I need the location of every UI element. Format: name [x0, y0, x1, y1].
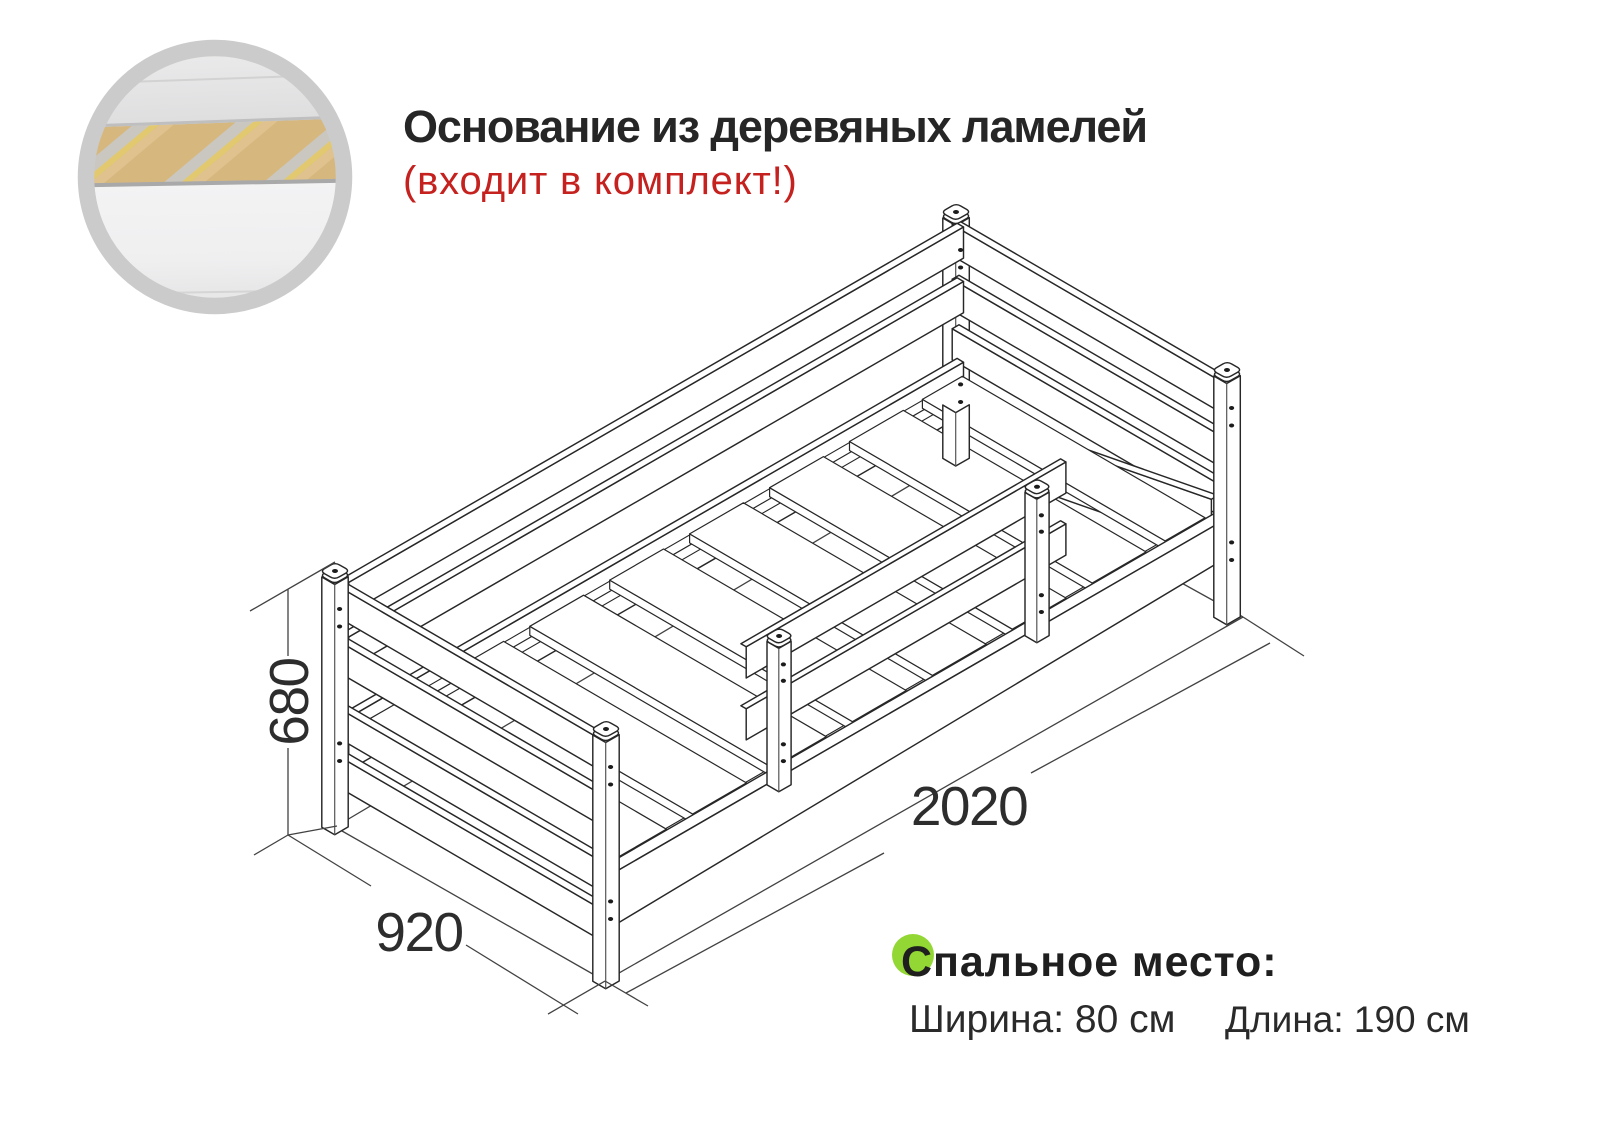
svg-text:920: 920 — [375, 901, 462, 963]
svg-text:2020: 2020 — [911, 775, 1027, 837]
svg-text:680: 680 — [258, 658, 320, 745]
